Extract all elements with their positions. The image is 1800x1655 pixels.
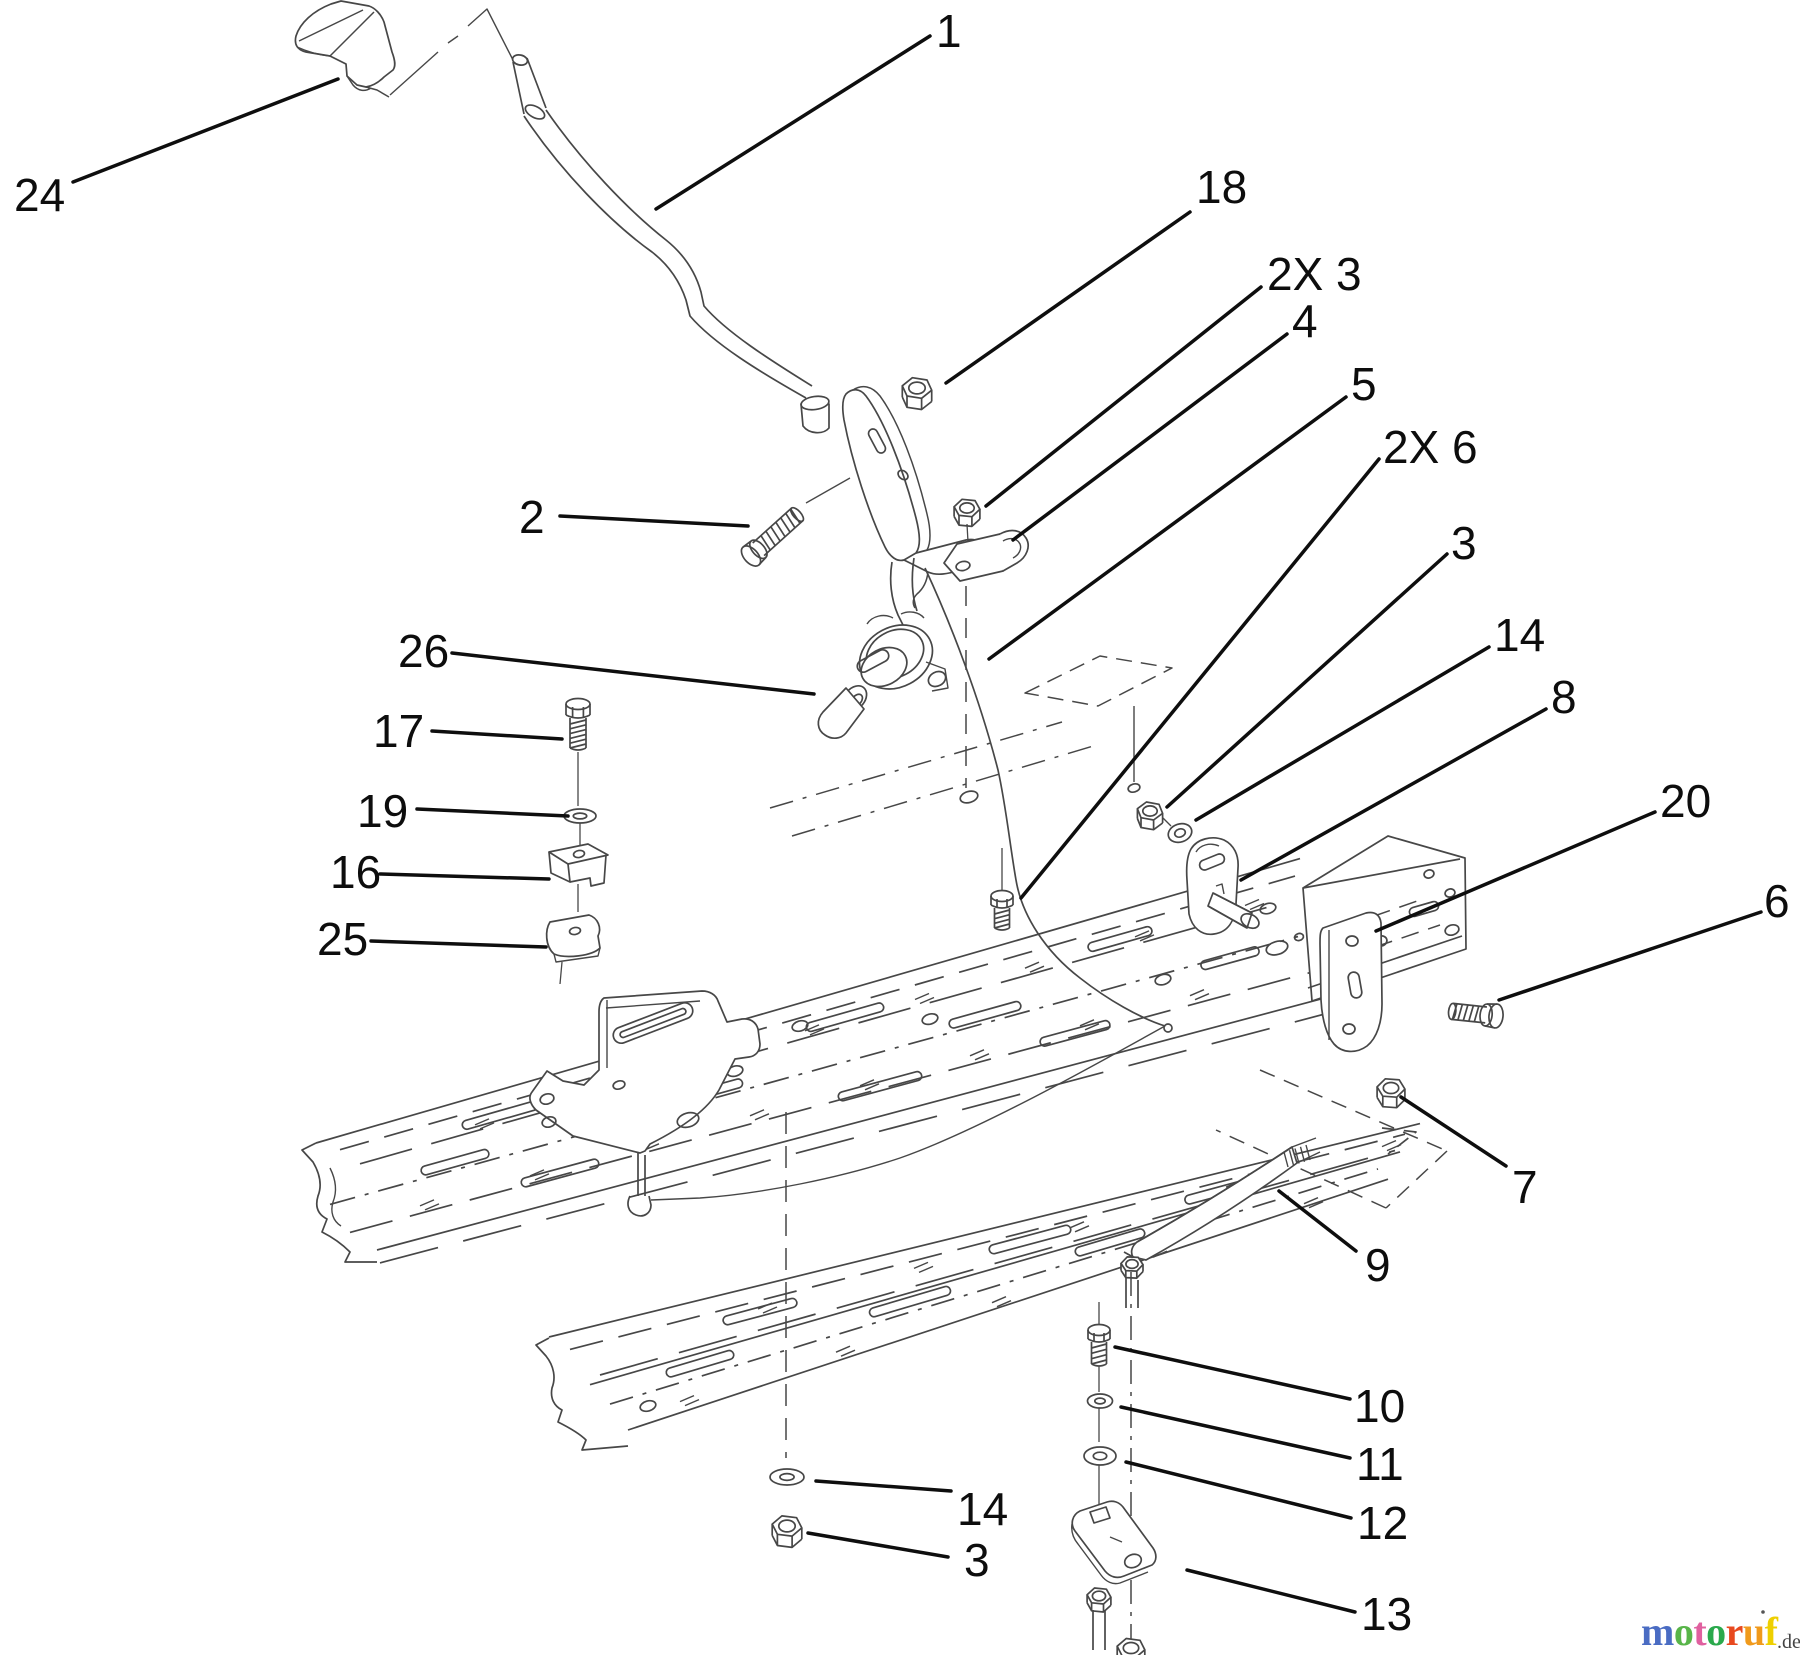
svg-text:12: 12 [1357,1497,1408,1549]
svg-text:motoruf: motoruf [1641,1609,1779,1654]
svg-text:24: 24 [14,169,65,221]
svg-text:2X 3: 2X 3 [1267,248,1362,300]
svg-text:16: 16 [330,846,381,898]
svg-text:20: 20 [1660,775,1711,827]
svg-text:25: 25 [317,913,368,965]
svg-text:18: 18 [1196,161,1247,213]
svg-text:14: 14 [957,1483,1008,1535]
svg-text:5: 5 [1351,358,1377,410]
svg-text:2X 6: 2X 6 [1383,421,1478,473]
svg-text:10: 10 [1354,1380,1405,1432]
svg-text:.de: .de [1777,1631,1800,1653]
svg-text:26: 26 [398,625,449,677]
svg-text:3: 3 [1451,517,1477,569]
svg-text:1: 1 [936,5,962,57]
svg-text:8: 8 [1551,671,1577,723]
svg-text:2: 2 [519,491,545,543]
svg-text:14: 14 [1494,609,1545,661]
svg-text:7: 7 [1512,1161,1538,1213]
svg-text:6: 6 [1764,875,1790,927]
svg-text:17: 17 [373,705,424,757]
svg-text:11: 11 [1356,1438,1404,1490]
svg-text:9: 9 [1365,1239,1391,1291]
svg-text:4: 4 [1292,295,1318,347]
svg-text:13: 13 [1361,1588,1412,1640]
svg-text:3: 3 [964,1534,990,1586]
svg-text:19: 19 [357,785,408,837]
